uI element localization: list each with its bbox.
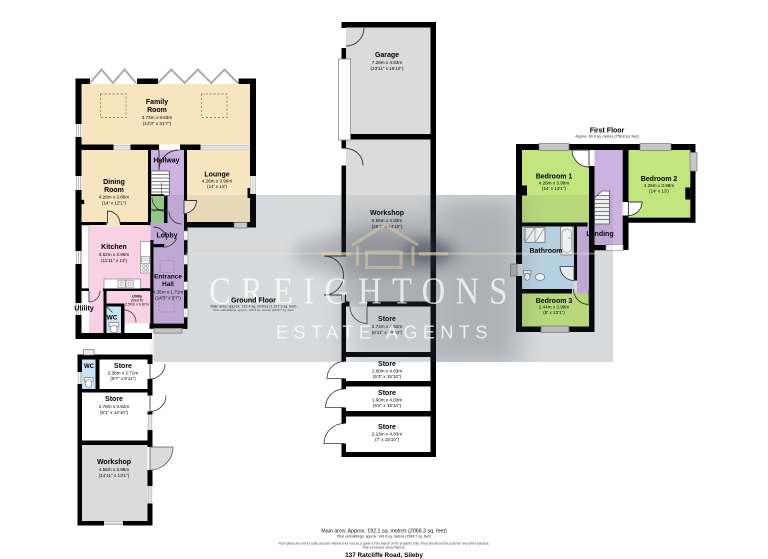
svg-text:(14' x 13'): (14' x 13') xyxy=(649,189,669,194)
svg-text:2.78m x 3.92m: 2.78m x 3.92m xyxy=(99,404,130,409)
svg-text:(12'3" x 31'7"): (12'3" x 31'7") xyxy=(143,121,172,126)
svg-text:Store: Store xyxy=(378,390,396,397)
svg-text:(23'11" x 15'10"): (23'11" x 15'10") xyxy=(370,66,403,71)
svg-text:4.26m x 3.96m: 4.26m x 3.96m xyxy=(644,183,675,188)
svg-text:(14' x 13'1"): (14' x 13'1") xyxy=(542,186,567,191)
svg-text:3.62m x 3.96m: 3.62m x 3.96m xyxy=(99,252,130,257)
svg-text:(11'11" x 13'): (11'11" x 13') xyxy=(101,258,127,263)
svg-text:1.60m x 4.83m: 1.60m x 4.83m xyxy=(372,398,403,403)
svg-text:137 Ratcliffe Road, Sileby: 137 Ratcliffe Road, Sileby xyxy=(345,552,423,559)
svg-text:ESTATE AGENTS: ESTATE AGENTS xyxy=(276,323,493,343)
svg-text:Garage: Garage xyxy=(375,52,399,59)
svg-text:Store: Store xyxy=(114,363,132,370)
svg-text:(14'11" x 13'1"): (14'11" x 13'1") xyxy=(99,473,130,478)
svg-text:First Floor: First Floor xyxy=(590,128,625,135)
svg-text:(5'3" x 15'10"): (5'3" x 15'10") xyxy=(373,374,402,379)
svg-text:Dining: Dining xyxy=(103,179,125,186)
svg-text:Store: Store xyxy=(378,424,396,431)
svg-text:Store: Store xyxy=(105,396,123,403)
svg-text:Bedroom 2: Bedroom 2 xyxy=(641,176,678,183)
svg-text:Hallway: Hallway xyxy=(153,158,179,165)
svg-text:4.26m x 3.98m: 4.26m x 3.98m xyxy=(539,181,570,186)
svg-text:WC: WC xyxy=(84,364,95,370)
svg-text:1.60m x 4.83m: 1.60m x 4.83m xyxy=(372,369,403,374)
svg-text:Lounge: Lounge xyxy=(204,172,229,179)
svg-text:2.08m x 2.71m: 2.08m x 2.71m xyxy=(108,371,139,376)
svg-text:4.26m x 3.96m: 4.26m x 3.96m xyxy=(202,179,233,184)
svg-text:(14' x 12'1"): (14' x 12'1") xyxy=(102,201,127,206)
svg-text:Store: Store xyxy=(378,361,396,368)
svg-text:Kitchen: Kitchen xyxy=(101,244,127,251)
svg-text:(5'2" x 15'10"): (5'2" x 15'10") xyxy=(373,403,402,408)
svg-text:4.56m x 3.98m: 4.56m x 3.98m xyxy=(99,467,130,472)
svg-text:Workshop: Workshop xyxy=(97,459,131,466)
svg-text:Room: Room xyxy=(147,107,167,114)
svg-text:2.50m x 0.87m: 2.50m x 0.87m xyxy=(125,303,149,307)
svg-text:Plus outbuildings, approx. 143: Plus outbuildings, approx. 143.9 sq. met… xyxy=(337,535,431,539)
svg-text:Room: Room xyxy=(104,187,124,194)
svg-text:(6'7" x 8'11"): (6'7" x 8'11") xyxy=(110,376,136,381)
svg-text:3.73m x 9.63m: 3.73m x 9.63m xyxy=(142,115,173,120)
svg-text:(14' x 13'): (14' x 13') xyxy=(207,184,227,189)
svg-text:Plan produced using PlanUp.: Plan produced using PlanUp. xyxy=(363,545,406,549)
svg-text:7.28m x 4.83m: 7.28m x 4.83m xyxy=(372,60,403,65)
svg-text:(9'1" x 12'10"): (9'1" x 12'10") xyxy=(100,410,129,415)
svg-text:Approx. 69.9 sq. metres (758.8: Approx. 69.9 sq. metres (758.8 sq. feet) xyxy=(575,135,638,139)
svg-text:2.13m x 4.83m: 2.13m x 4.83m xyxy=(372,432,403,437)
svg-text:Family: Family xyxy=(146,99,168,106)
svg-text:WC: WC xyxy=(107,315,118,322)
svg-text:(7' x 15'10"): (7' x 15'10") xyxy=(375,437,400,442)
svg-text:Bedroom 1: Bedroom 1 xyxy=(536,174,573,181)
svg-text:Utility: Utility xyxy=(74,306,94,313)
svg-text:Plus outbuildings, approx. 143: Plus outbuildings, approx. 143.9 sq. met… xyxy=(213,308,293,312)
svg-text:4.26m x 3.86m: 4.26m x 3.86m xyxy=(99,195,130,200)
